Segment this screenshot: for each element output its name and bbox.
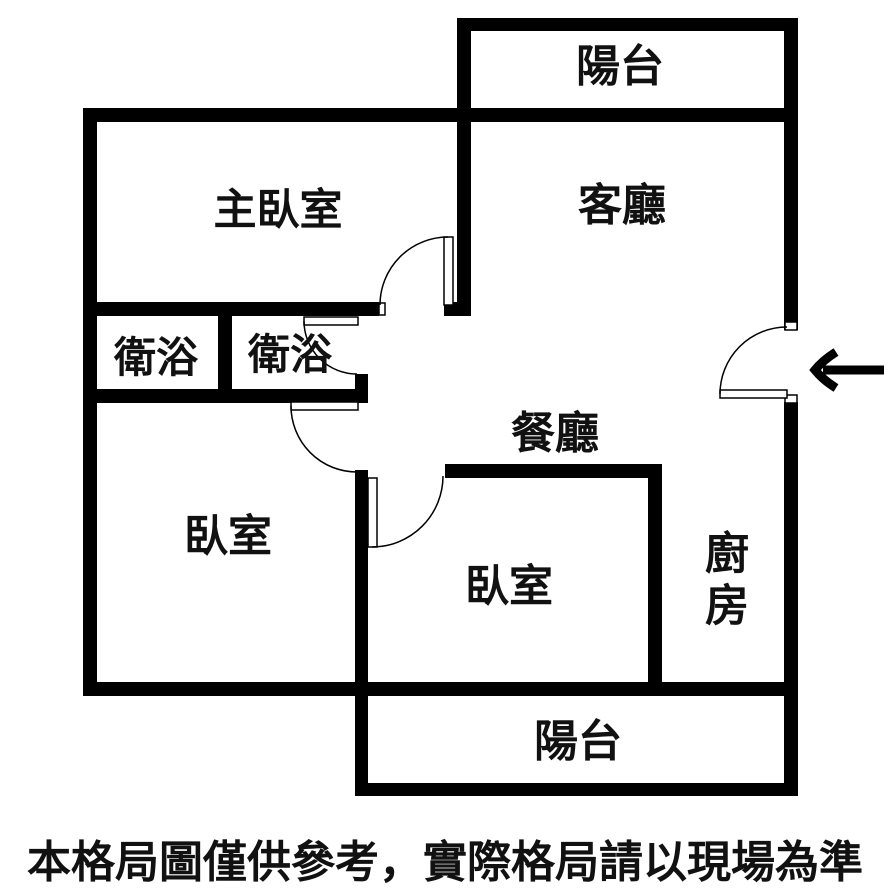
master-bedroom-door-leaf [444,237,453,305]
floor-plan-drawing [0,0,889,892]
entrance-door-arc [720,327,787,394]
wall-top-main [83,108,798,122]
wall-bathroom2-corner-block [355,374,368,403]
bedroom-center-door-arc [372,476,443,547]
wall-bathroom-bottom [83,389,368,403]
wall-balcony-top-outer [457,18,798,31]
bedroom-left-door-arc [291,406,357,472]
wall-bottom-main [83,682,798,696]
wall-kitchen-divider [648,464,662,696]
bedroom-center-door-leaf [368,478,377,547]
entrance-door-jamb-top [785,322,797,330]
room-label-master-bedroom: 主臥室 [214,190,343,233]
wall-balcony-bottom-outer [355,783,798,796]
bedroom-left-door-leaf [291,402,358,410]
room-label-bathroom-2: 衛浴 [248,334,332,376]
wall-master-living-divider [457,108,471,316]
walls [83,18,798,796]
master-bedroom-door-arc [380,237,448,305]
room-label-balcony-top: 陽台 [576,45,664,89]
entrance-door-leaf [720,390,787,398]
wall-bathroom-divider [218,302,232,402]
wall-bedroom-right-balcony-left [355,470,368,796]
wall-right-upper [784,18,798,330]
room-label-living-room: 客廳 [578,184,666,228]
wall-balcony-top-left [457,18,471,112]
room-label-balcony-bottom: 陽台 [534,720,622,764]
disclaimer-text: 本格局圖僅供參考，實際格局請以現場為準 [27,826,863,890]
room-label-dining-room: 餐廳 [511,412,599,456]
room-label-bathroom-1: 衛浴 [114,337,198,379]
wall-right-lower [784,402,798,796]
bathroom2-door-leaf [304,317,358,325]
room-label-bedroom-center: 臥室 [465,565,553,609]
entrance-arrow-icon [815,352,884,388]
room-label-kitchen: 廚房 [700,530,744,634]
room-label-bedroom-left: 臥室 [184,515,272,559]
wall-bedroom-center-top [445,464,662,478]
floor-plan-canvas: 陽台 主臥室 客廳 衛浴 衛浴 餐廳 臥室 臥室 廚房 陽台 本格局圖僅供參考，… [0,0,889,892]
